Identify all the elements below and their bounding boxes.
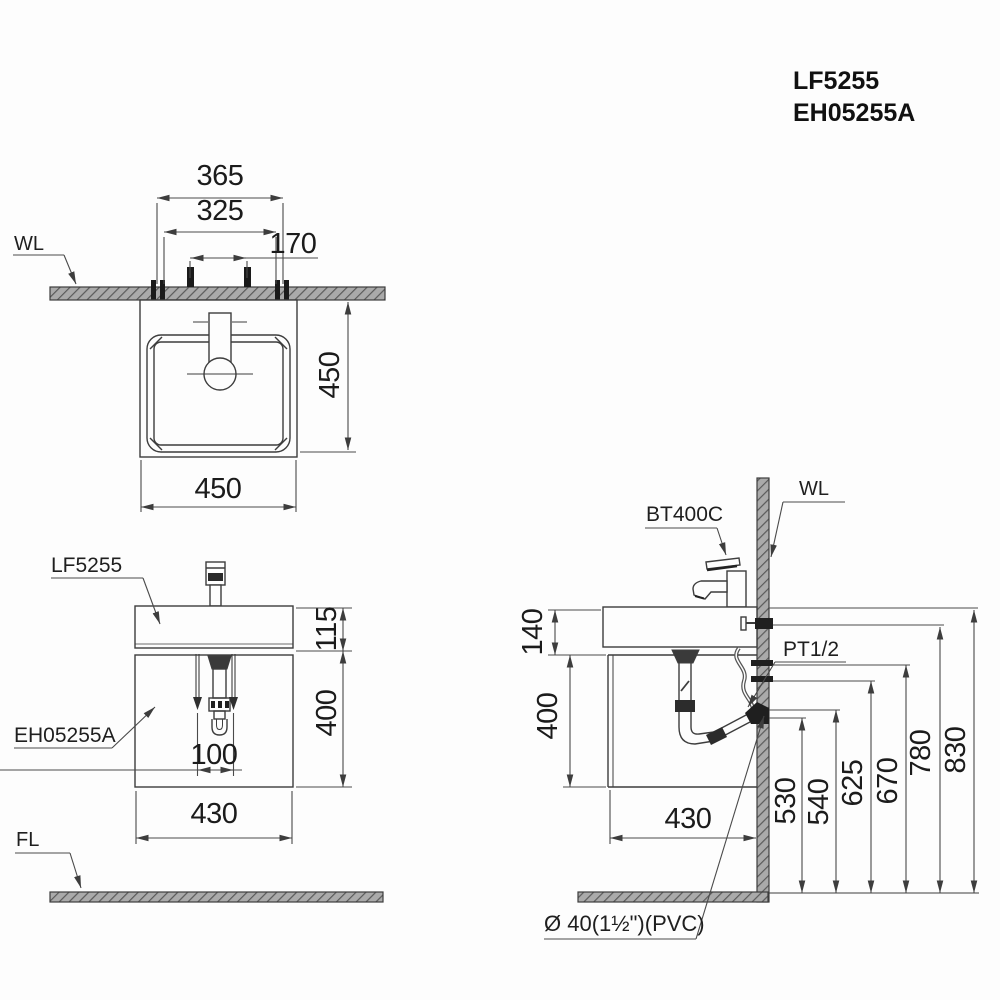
side-wall-line-label: WL (799, 478, 829, 501)
dim-365: 365 (160, 161, 280, 191)
side-faucet-label: BT400C (646, 503, 723, 527)
dim-450-width: 450 (158, 474, 278, 504)
top-view-wall-line-label: WL (14, 233, 44, 256)
dim-625: 625 (838, 723, 868, 843)
front-cabinet-label: EH05255A (14, 724, 116, 748)
installation-drawing: LF5255 EH05255A WL 365 325 170 450 450 L… (0, 0, 1000, 1000)
front-basin-label: LF5255 (51, 554, 122, 578)
dim-430-side: 430 (628, 804, 748, 834)
product-code-cabinet: EH05255A (793, 99, 915, 128)
product-code-basin: LF5255 (793, 67, 879, 96)
dim-430-front: 430 (154, 799, 274, 829)
dim-400-front: 400 (312, 653, 342, 773)
side-drain-pipe-note: Ø 40(1½")(PVC) (544, 911, 705, 937)
dim-670: 670 (873, 721, 903, 841)
dim-400-side: 400 (533, 656, 563, 776)
dim-540: 540 (804, 742, 834, 862)
dim-100: 100 (154, 740, 274, 770)
side-supply-label: PT1/2 (783, 638, 839, 662)
dim-325: 325 (160, 196, 280, 226)
dim-450-depth: 450 (315, 315, 345, 435)
front-floor-line-label: FL (16, 829, 39, 852)
dim-830: 830 (941, 690, 971, 810)
dim-780: 780 (906, 693, 936, 813)
technical-drawing-linework (0, 0, 1000, 1000)
dim-170: 170 (233, 229, 353, 259)
dim-530: 530 (771, 741, 801, 861)
